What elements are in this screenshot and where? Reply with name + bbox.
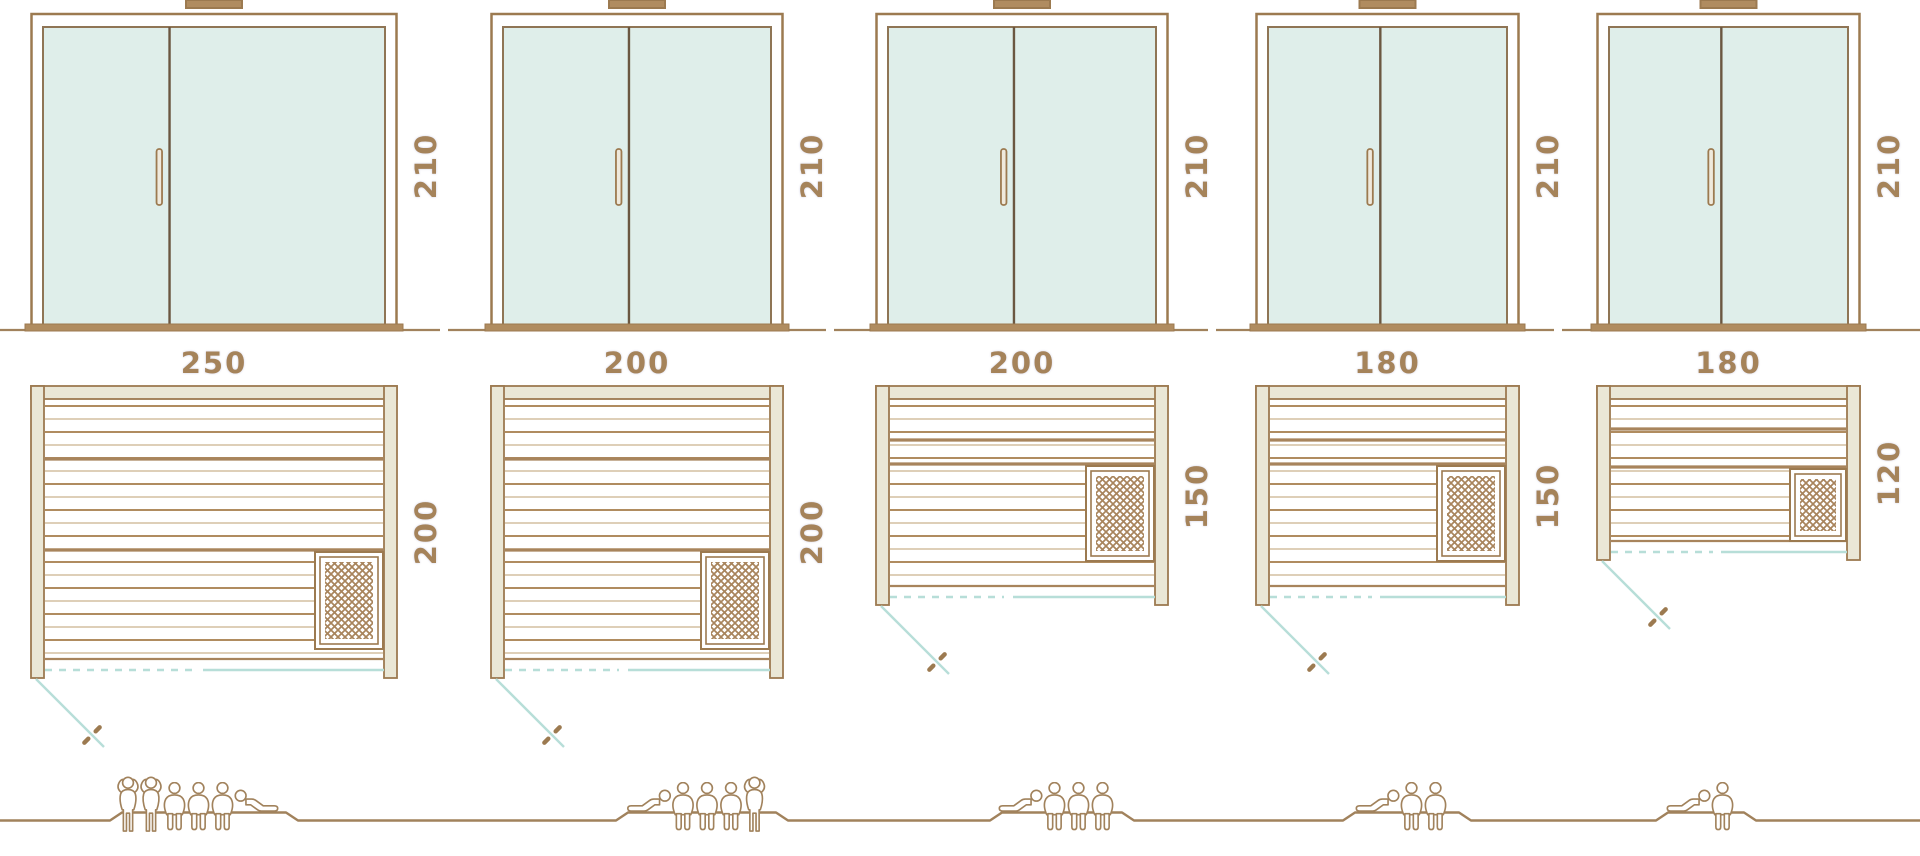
floor-plan-drawing [30, 385, 398, 769]
heater-grid [711, 562, 759, 639]
door-height-dimension-label: 210 [1175, 144, 1219, 188]
plan-jamb-right [1155, 386, 1168, 605]
door-height-dimension-label: 210 [404, 144, 448, 188]
floor-plan-drawing [1255, 385, 1520, 696]
plan-depth-dimension-label: 150 [1175, 474, 1219, 518]
plan-depth-dimension-label: 150 [1526, 474, 1570, 518]
door-glass [503, 27, 771, 326]
plan-wall-top [1256, 386, 1519, 399]
door-glass [43, 27, 385, 326]
door-handle [616, 149, 621, 205]
heater-grid [1447, 476, 1495, 551]
plan-wall-top [491, 386, 783, 399]
door-swing-line [881, 606, 949, 674]
person-sitting-icon [1068, 783, 1088, 830]
roof-cap [1360, 0, 1416, 8]
person-sitting-icon [188, 783, 208, 830]
person-sitting-icon [1044, 783, 1064, 830]
door-height-dimension-label: 210 [1526, 144, 1570, 188]
plan-width-dimension-label: 200 [490, 346, 784, 380]
door-elevation-drawing [1255, 0, 1520, 340]
person-standing-icon [118, 777, 138, 831]
door-handle [1367, 149, 1373, 205]
door-glass [888, 27, 1156, 326]
person-lying-icon [235, 790, 277, 811]
capacity-figures [946, 774, 1166, 836]
roof-cap [1701, 0, 1757, 8]
plan-width-dimension-label: 180 [1596, 346, 1861, 380]
door-threshold [1250, 324, 1525, 331]
door-elevation-drawing [875, 0, 1169, 340]
plan-jamb-left [1256, 386, 1269, 605]
door-swing-line [496, 679, 564, 747]
plan-depth-dimension-label: 200 [404, 510, 448, 554]
person-sitting-icon [673, 783, 693, 830]
person-sitting-icon [1712, 783, 1732, 830]
plan-jamb-left [876, 386, 889, 605]
plan-wall-top [31, 386, 397, 399]
door-handle [157, 149, 163, 205]
door-swing-line [36, 679, 104, 747]
plan-width-dimension-label: 250 [30, 346, 398, 380]
door-glass [1609, 27, 1848, 326]
door-swing-line [1602, 561, 1670, 629]
plan-jamb-right [1847, 386, 1860, 560]
person-sitting-icon [1401, 783, 1421, 830]
door-height-dimension-label: 210 [790, 144, 834, 188]
person-standing-icon [745, 777, 765, 831]
door-elevation-drawing [30, 0, 398, 340]
capacity-figures [1590, 774, 1810, 836]
plan-jamb-right [1506, 386, 1519, 605]
capacity-figures [88, 774, 308, 836]
plan-jamb-right [770, 386, 783, 678]
person-lying-icon [1667, 790, 1709, 811]
person-sitting-icon [1092, 783, 1112, 830]
heater-grid [1800, 479, 1836, 531]
door-threshold [1591, 324, 1866, 331]
person-lying-icon [1356, 790, 1398, 811]
door-elevation-drawing [490, 0, 784, 340]
sauna-dimension-diagram: 2102502002102002002102001502101801502101… [0, 0, 1920, 856]
plan-jamb-right [384, 386, 397, 678]
plan-jamb-left [1597, 386, 1610, 560]
heater-grid [1096, 476, 1144, 551]
door-glass [1268, 27, 1507, 326]
person-sitting-icon [1425, 783, 1445, 830]
heater-grid [325, 562, 373, 639]
floor-plan-drawing [875, 385, 1169, 696]
door-handle [1001, 149, 1006, 205]
plan-wall-top [876, 386, 1168, 399]
plan-wall-top [1597, 386, 1860, 399]
roof-cap [994, 0, 1050, 8]
plan-jamb-left [491, 386, 504, 678]
door-handle [1708, 149, 1714, 205]
capacity-figures [586, 774, 806, 836]
roof-cap [186, 0, 242, 8]
roof-cap [609, 0, 665, 8]
plan-width-dimension-label: 200 [875, 346, 1169, 380]
door-elevation-drawing [1596, 0, 1861, 340]
person-lying-icon [628, 790, 670, 811]
door-threshold [870, 324, 1174, 331]
person-sitting-icon [212, 783, 232, 830]
door-threshold [25, 324, 403, 331]
plan-depth-dimension-label: 120 [1867, 451, 1911, 495]
plan-depth-dimension-label: 200 [790, 510, 834, 554]
door-swing-line [1261, 606, 1329, 674]
floor-plan-drawing [490, 385, 784, 769]
plan-width-dimension-label: 180 [1255, 346, 1520, 380]
capacity-figures [1291, 774, 1511, 836]
door-height-dimension-label: 210 [1867, 144, 1911, 188]
person-standing-icon [141, 777, 161, 831]
floor-plan-drawing [1596, 385, 1861, 651]
plan-jamb-left [31, 386, 44, 678]
person-lying-icon [999, 790, 1041, 811]
person-sitting-icon [164, 783, 184, 830]
person-sitting-icon [721, 783, 741, 830]
door-threshold [485, 324, 789, 331]
person-sitting-icon [697, 783, 717, 830]
